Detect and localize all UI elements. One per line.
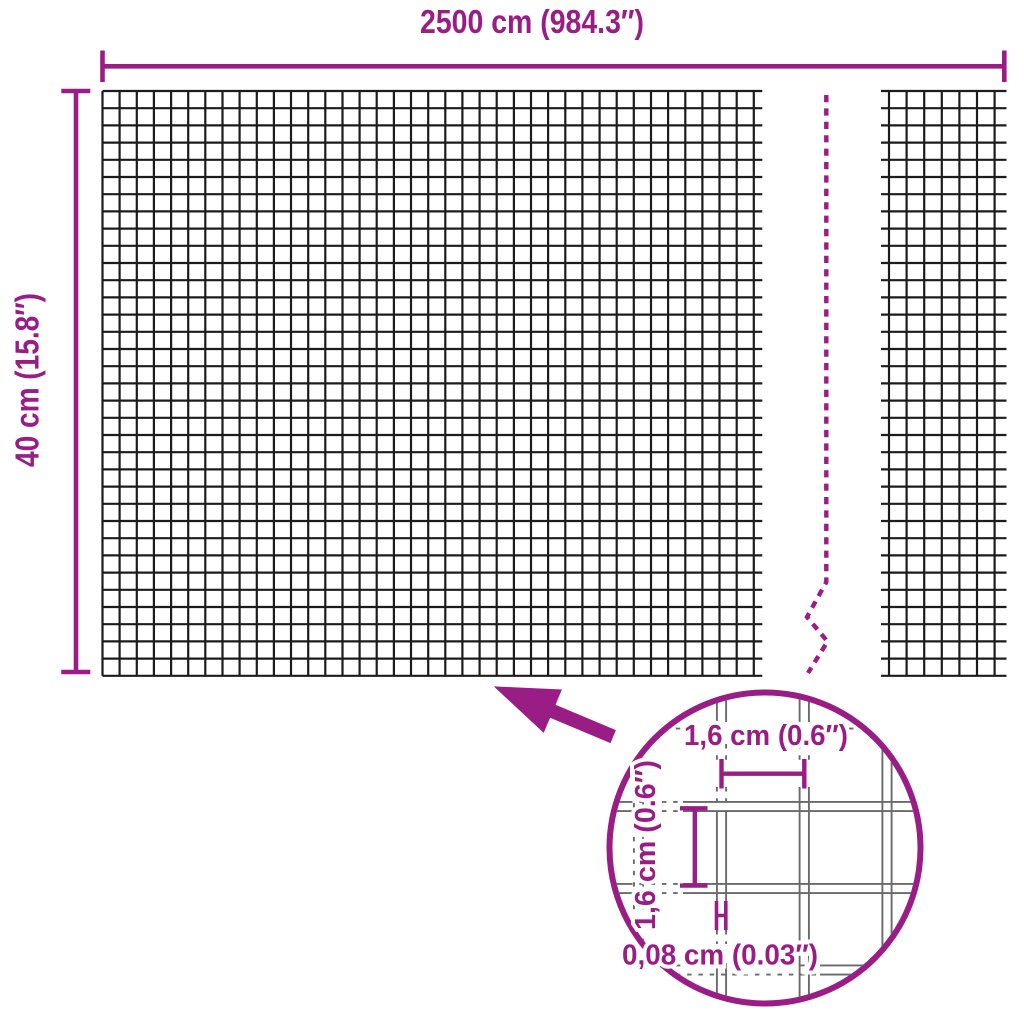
svg-text:2500 cm (984.3″): 2500 cm (984.3″) — [420, 3, 644, 40]
svg-text:0,08 cm (0.03″): 0,08 cm (0.03″) — [622, 940, 818, 972]
svg-text:40 cm (15.8″): 40 cm (15.8″) — [9, 293, 46, 467]
svg-text:1,6 cm (0.6″): 1,6 cm (0.6″) — [684, 720, 848, 752]
svg-text:1,6 cm (0.6″): 1,6 cm (0.6″) — [630, 760, 662, 930]
